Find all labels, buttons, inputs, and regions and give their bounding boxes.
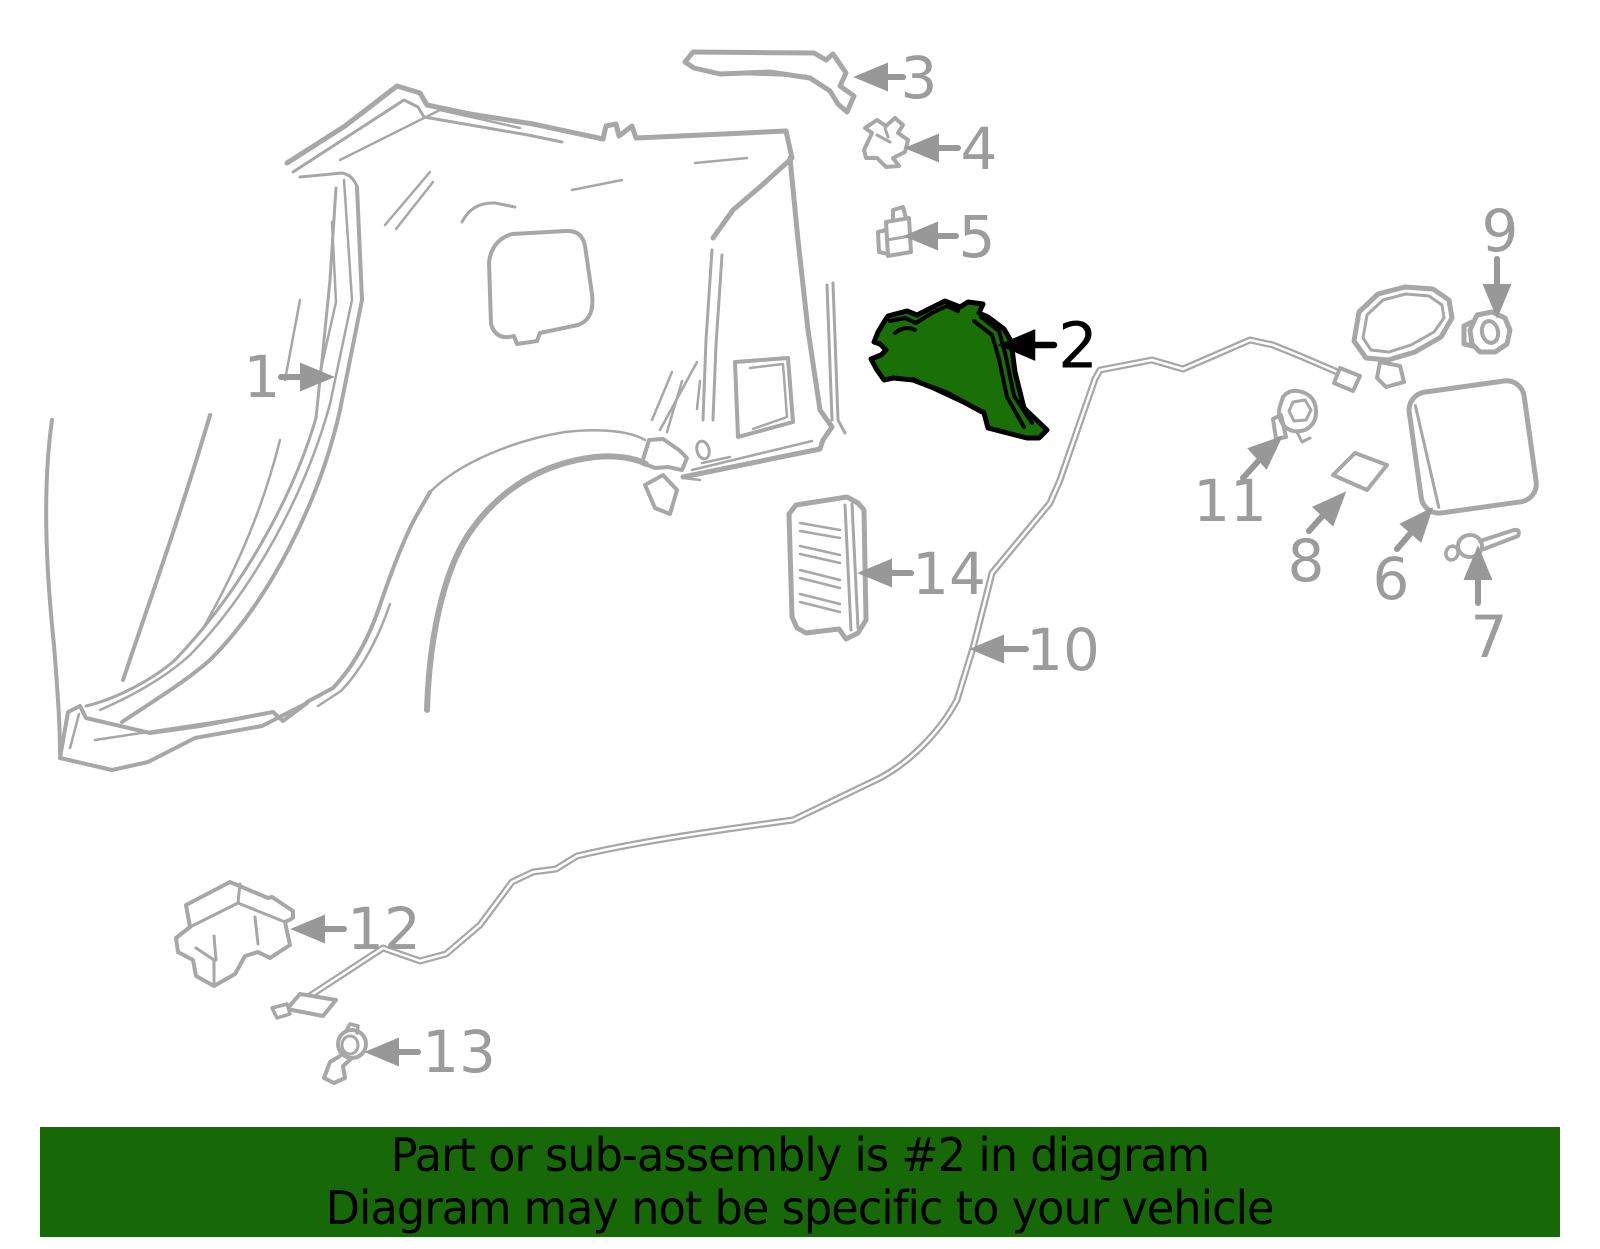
highlighted-part-2 — [871, 301, 1047, 438]
callout-3-label: 3 — [901, 44, 938, 112]
parts-diagram: 1 2 3 4 5 6 7 8 9 10 11 12 13 14 — [0, 0, 1600, 1249]
callout-14-arrow — [865, 563, 911, 583]
fuel-door-part-6 — [1407, 378, 1539, 515]
callout-10-label: 10 — [1026, 616, 1100, 684]
callout-10-arrow — [977, 639, 1026, 659]
callout-3-arrow — [861, 67, 903, 87]
nut-part-9 — [1464, 312, 1510, 352]
callout-12-arrow — [298, 919, 344, 939]
bolt-part-5 — [878, 207, 911, 256]
latch-bracket-part-12 — [176, 882, 293, 986]
spoiler-part-3 — [685, 52, 854, 112]
callout-9-arrow — [1487, 259, 1507, 311]
callout-5-arrow — [911, 226, 956, 246]
callout-7-arrow — [1468, 553, 1488, 603]
callout-6-label: 6 — [1373, 545, 1410, 613]
callout-8-arrow — [1309, 490, 1348, 531]
parts-diagram-page: 1 2 3 4 5 6 7 8 9 10 11 12 13 14 Part or… — [0, 0, 1600, 1249]
release-cable-part-10 — [272, 287, 1452, 1018]
callout-9-label: 9 — [1482, 197, 1519, 265]
callout-1-label: 1 — [244, 343, 281, 411]
banner-line-2: Diagram may not be specific to your vehi… — [326, 1182, 1274, 1235]
callout-8-label: 8 — [1288, 527, 1325, 595]
highlight-banner: Part or sub-assembly is #2 in diagram Di… — [40, 1127, 1560, 1237]
callout-6-arrow — [1397, 506, 1436, 549]
callout-4-arrow — [912, 138, 958, 158]
banner-line-1: Part or sub-assembly is #2 in diagram — [391, 1129, 1209, 1182]
callout-2-label: 2 — [1058, 310, 1098, 383]
plate-part-8 — [1333, 453, 1387, 490]
callout-13-label: 13 — [422, 1018, 496, 1086]
callout-14-label: 14 — [912, 540, 986, 608]
callout-7-label: 7 — [1471, 603, 1508, 671]
callout-4-label: 4 — [961, 115, 998, 183]
clip-part-13 — [324, 1024, 366, 1083]
clip-part-11 — [1273, 391, 1316, 442]
clip-part-4 — [864, 118, 908, 167]
callout-5-label: 5 — [959, 203, 996, 271]
callout-11-label: 11 — [1193, 467, 1267, 535]
vent-part-14 — [789, 497, 866, 639]
callout-13-arrow — [372, 1042, 418, 1062]
quarter-panel-line-art — [46, 86, 845, 770]
callout-12-label: 12 — [347, 895, 421, 963]
